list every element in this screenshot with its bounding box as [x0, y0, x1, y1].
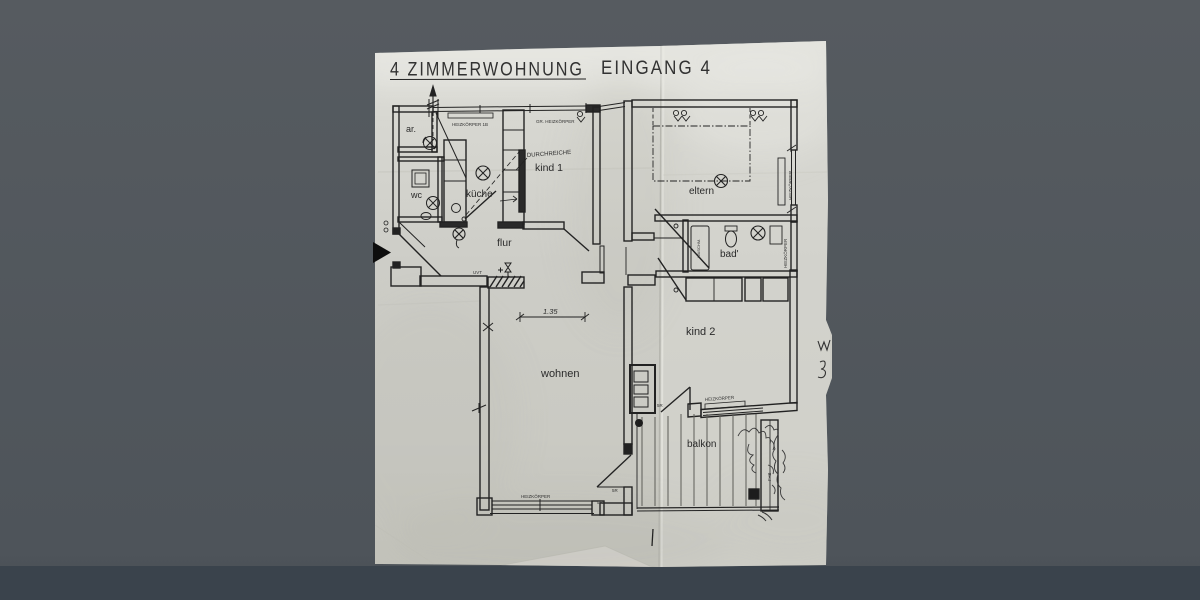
svg-text:WASCHM.: WASCHM.	[696, 239, 701, 258]
svg-text:GR. HEIZKÖRPER: GR. HEIZKÖRPER	[536, 118, 575, 124]
svg-text:bad': bad'	[720, 249, 739, 260]
svg-text:UVT: UVT	[473, 270, 482, 275]
svg-text:F+B: F+B	[767, 473, 772, 481]
svg-text:balkon: balkon	[687, 439, 716, 450]
svg-text:flur: flur	[497, 237, 512, 249]
svg-text:kind 1: kind 1	[535, 162, 563, 174]
svg-text:küche: küche	[466, 189, 493, 200]
svg-text:HEIZKÖRPER 1B: HEIZKÖRPER 1B	[452, 121, 488, 127]
svg-text:4 ZIMMERWOHNUNG: 4 ZIMMERWOHNUNG	[390, 59, 584, 81]
svg-text:ar.: ar.	[406, 124, 416, 134]
svg-text:wc: wc	[410, 190, 422, 200]
svg-text:HEIZKÖRPER: HEIZKÖRPER	[782, 238, 788, 268]
svg-text:HEIZKÖRPER: HEIZKÖRPER	[521, 493, 551, 499]
svg-text:HEIZKÖRPER: HEIZKÖRPER	[787, 170, 793, 200]
svg-text:1.35: 1.35	[543, 307, 558, 316]
svg-text:EINGANG 4: EINGANG 4	[601, 57, 712, 79]
svg-text:eltern: eltern	[689, 186, 714, 197]
svg-text:5R: 5R	[597, 500, 604, 505]
svg-text:kind 2: kind 2	[686, 326, 715, 338]
svg-text:5R: 5R	[657, 403, 664, 408]
svg-text:5R: 5R	[612, 488, 619, 493]
svg-text:wohnen: wohnen	[540, 368, 580, 380]
